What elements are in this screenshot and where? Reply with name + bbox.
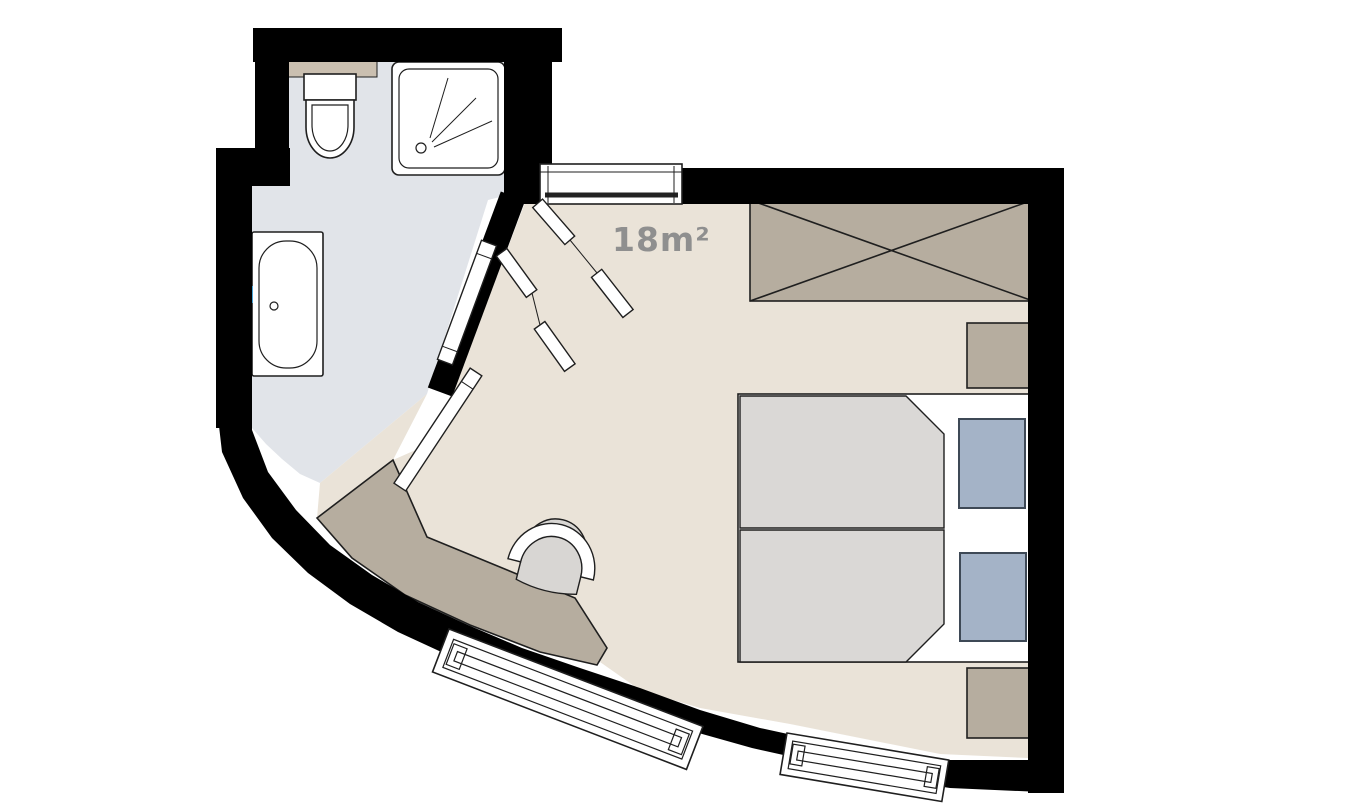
room-area-label: 18m² [612, 220, 711, 259]
wall-right [1028, 168, 1064, 793]
duvet-top [740, 396, 944, 528]
floor-plan-canvas: 18m² [0, 0, 1348, 805]
shower [392, 62, 505, 175]
wall-left-upper [255, 28, 289, 158]
wall-left [216, 150, 252, 428]
toilet [304, 74, 356, 158]
bathtub [249, 232, 323, 376]
window-top [540, 164, 682, 204]
wardrobe [750, 200, 1033, 301]
floor-plan: 18m² [0, 0, 1348, 805]
pillow-bottom [960, 553, 1026, 641]
double-bed [738, 394, 1032, 662]
nightstand-top [967, 323, 1033, 388]
nightstand-bottom [967, 668, 1034, 738]
duvet-bottom [740, 530, 944, 662]
pillow-top [959, 419, 1025, 508]
